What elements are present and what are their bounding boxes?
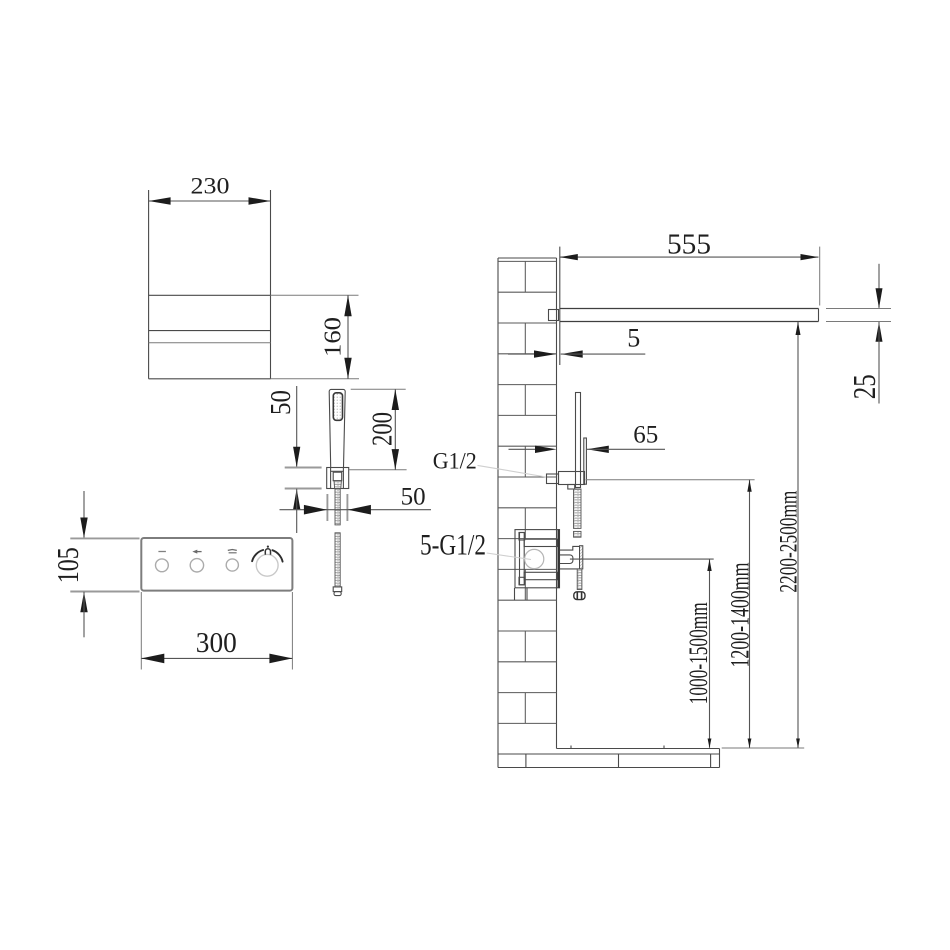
svg-text:5: 5	[627, 324, 640, 353]
svg-text:2200-2500mm: 2200-2500mm	[776, 490, 803, 592]
svg-text:555: 555	[667, 230, 711, 261]
svg-text:230: 230	[191, 174, 230, 199]
svg-text:25: 25	[846, 374, 882, 399]
svg-text:200: 200	[368, 412, 399, 446]
svg-text:5-G1/2: 5-G1/2	[420, 529, 486, 562]
svg-text:1200-1400mm: 1200-1400mm	[726, 563, 755, 668]
svg-text:1000-1500mm: 1000-1500mm	[684, 602, 713, 704]
svg-text:300: 300	[196, 628, 237, 659]
svg-text:G1/2: G1/2	[433, 449, 477, 474]
svg-text:50: 50	[266, 390, 297, 415]
svg-text:160: 160	[321, 317, 347, 357]
svg-text:50: 50	[401, 484, 426, 511]
svg-text:65: 65	[633, 422, 658, 449]
svg-text:105: 105	[50, 547, 85, 583]
